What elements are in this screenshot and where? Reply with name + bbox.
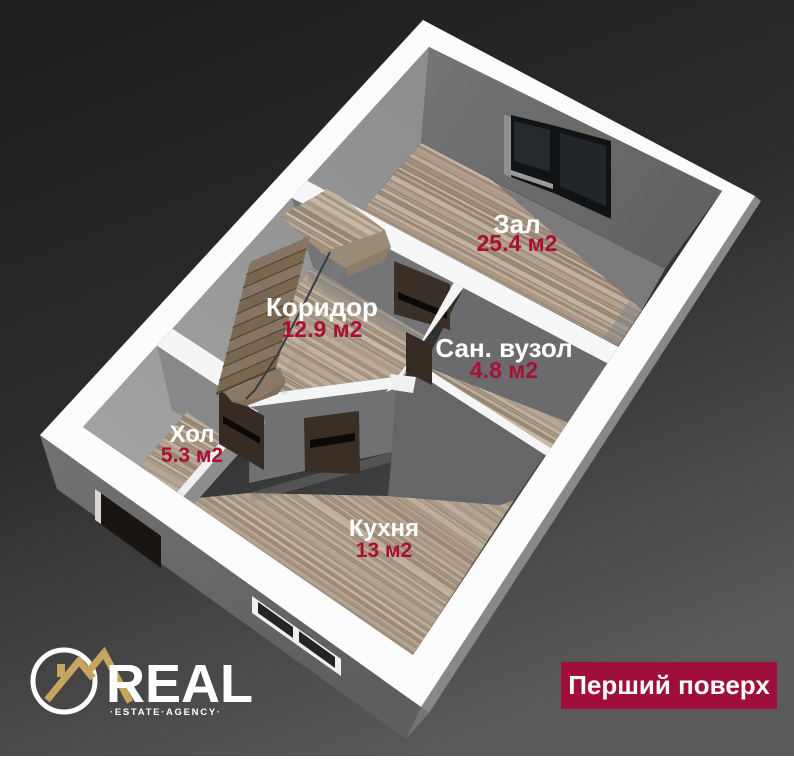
svg-text:Перший поверх: Перший поверх: [568, 670, 770, 700]
svg-text:5.3 м2: 5.3 м2: [161, 444, 223, 467]
svg-text:13 м2: 13 м2: [356, 539, 412, 562]
svg-text:REAL: REAL: [106, 654, 253, 714]
svg-text:·ESTATE·AGENCY·: ·ESTATE·AGENCY·: [110, 707, 222, 718]
svg-text:25.4 м2: 25.4 м2: [477, 230, 558, 256]
svg-text:12.9 м2: 12.9 м2: [282, 316, 363, 342]
svg-text:4.8 м2: 4.8 м2: [470, 357, 538, 383]
svg-text:Кухня: Кухня: [349, 515, 419, 542]
